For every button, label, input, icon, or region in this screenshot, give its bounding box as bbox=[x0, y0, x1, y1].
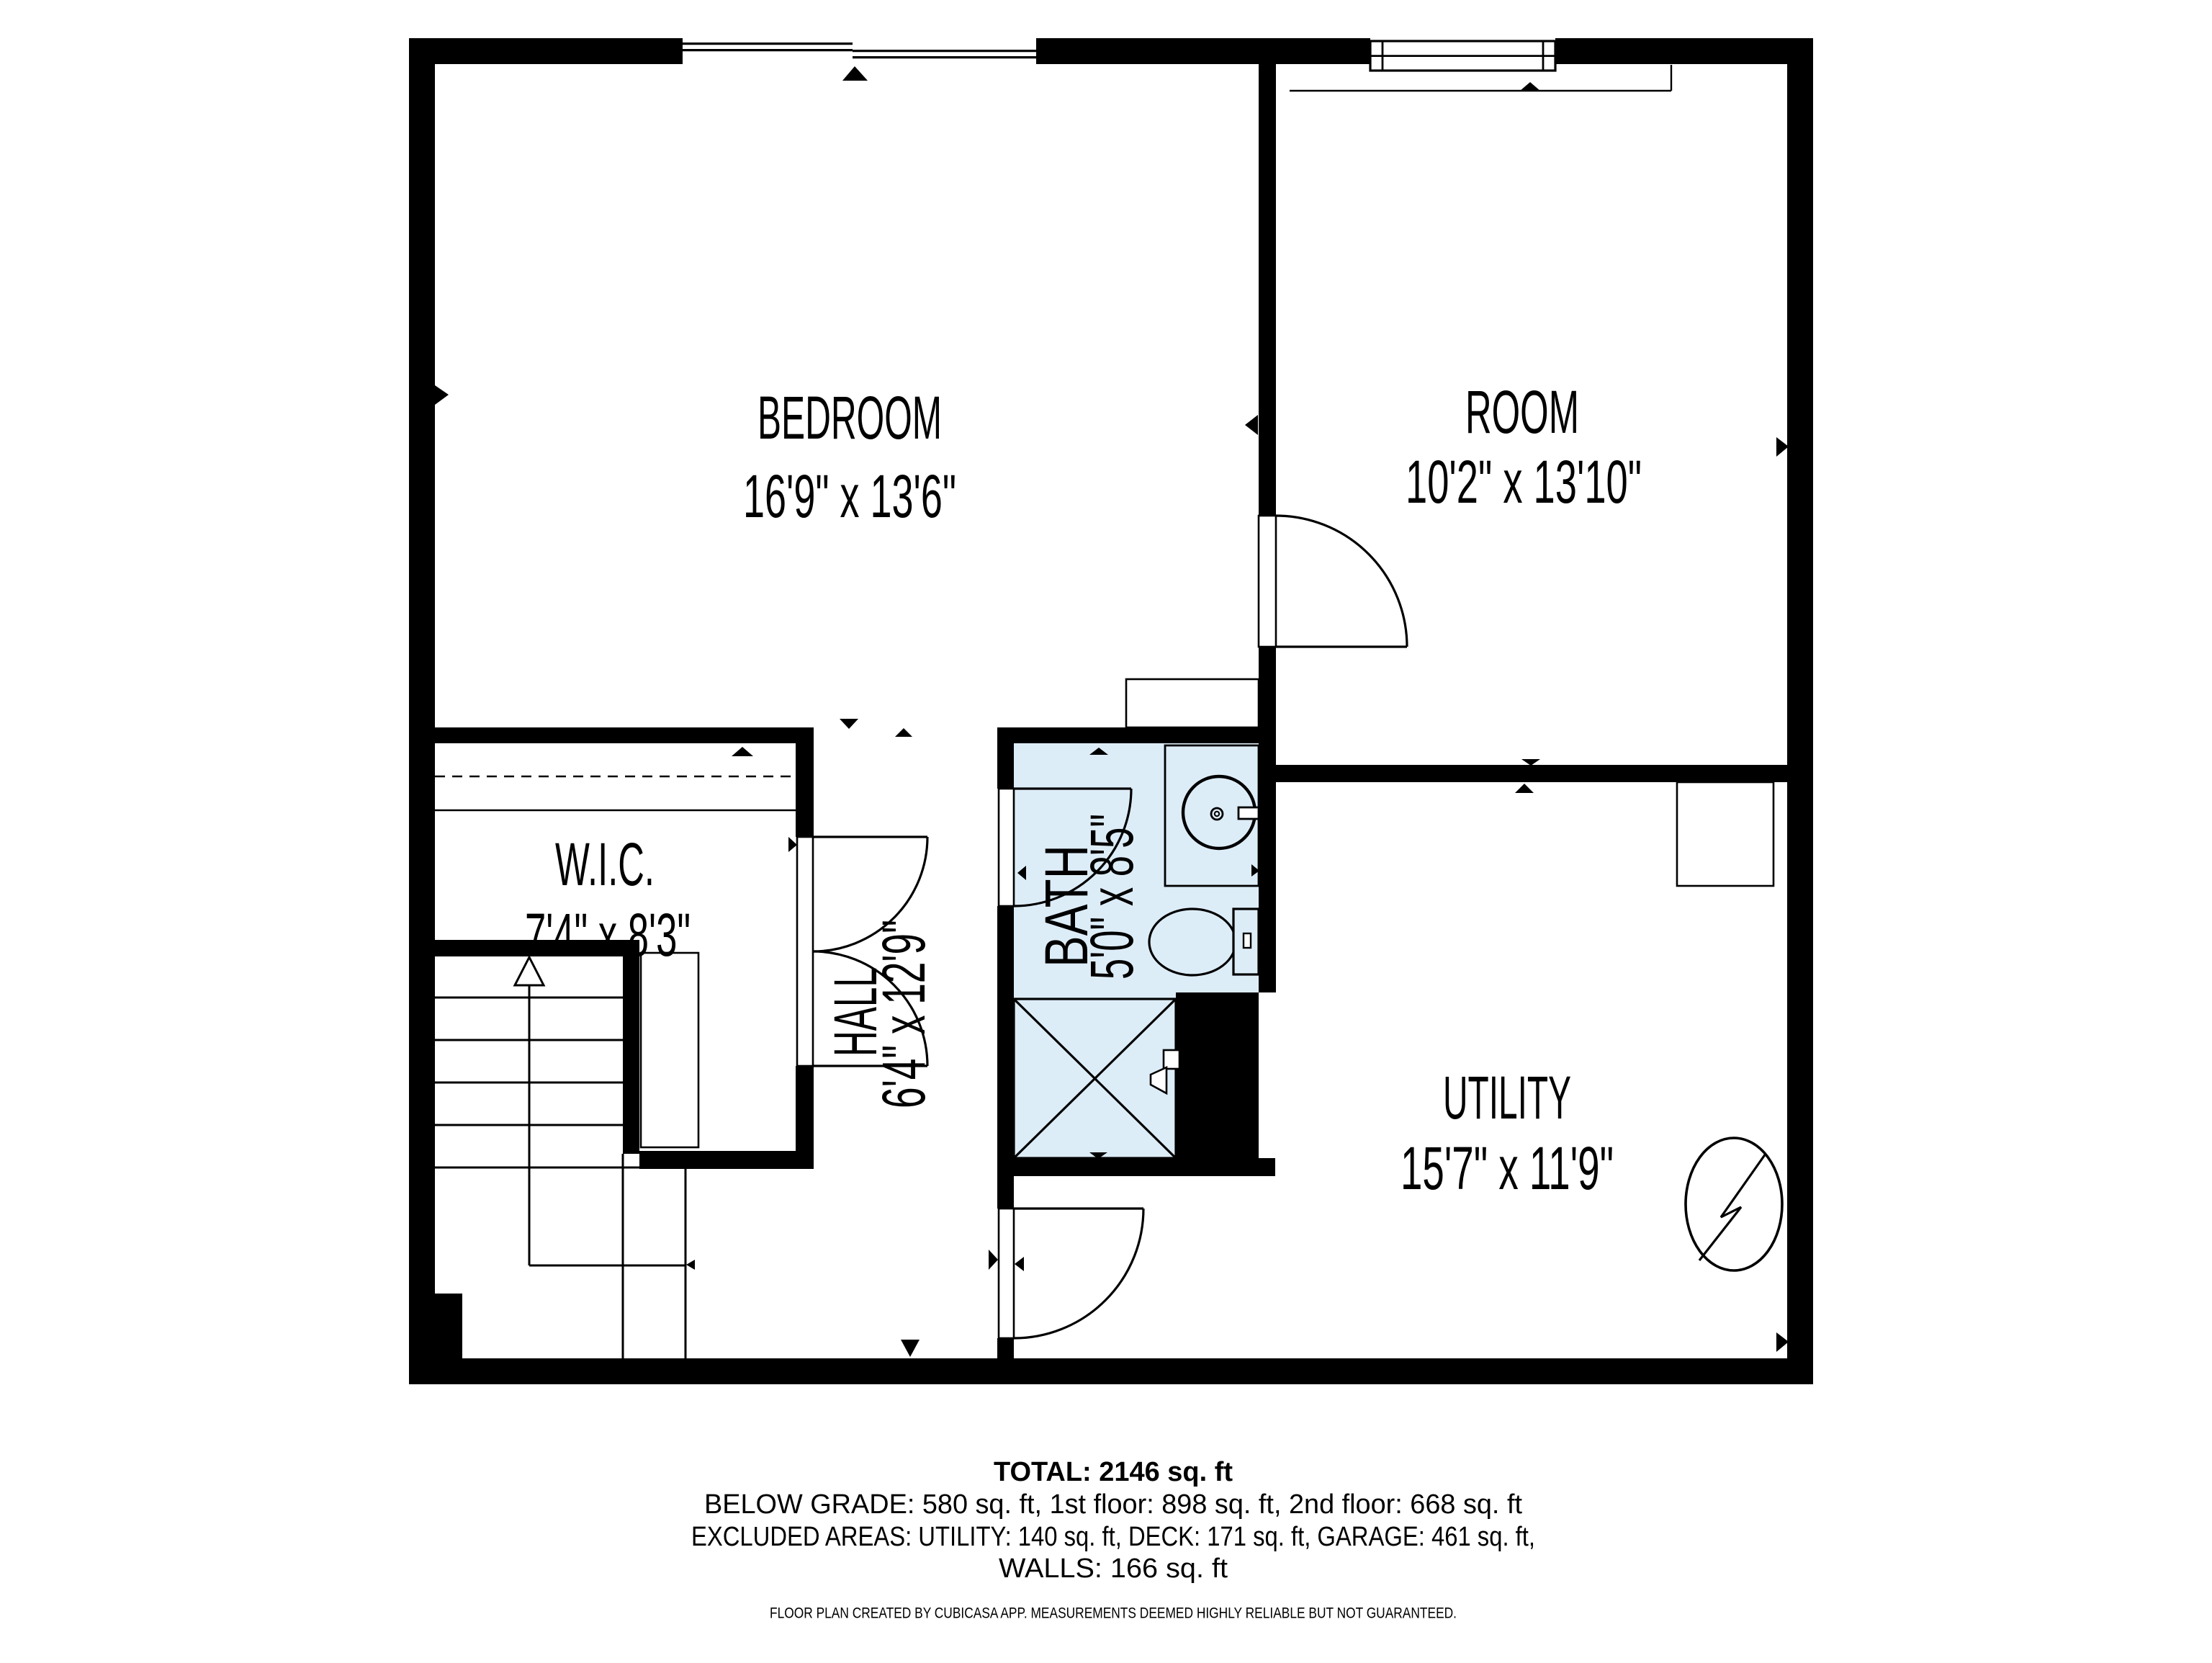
utility-label: UTILITY bbox=[1443, 1064, 1571, 1131]
room-dims: 10'2" x 13'10" bbox=[1406, 448, 1642, 516]
electrical-panel-icon bbox=[1686, 1138, 1782, 1270]
bedroom-recess-box bbox=[1126, 679, 1259, 727]
disclaimer-text: FLOOR PLAN CREATED BY CUBICASA APP. MEAS… bbox=[770, 1605, 1457, 1622]
wic-door-jamb bbox=[797, 837, 813, 1066]
bath-door-jamb bbox=[999, 789, 1014, 906]
bedroom-window-icon bbox=[683, 38, 1036, 64]
utility-cabinet-box bbox=[1677, 782, 1773, 886]
floors-area-text: BELOW GRADE: 580 sq. ft, 1st floor: 898 … bbox=[704, 1489, 1522, 1520]
floor-plan: BEDROOM 16'9" x 13'6" ROOM 10'2" x 13'10… bbox=[0, 0, 2212, 1659]
walls-area-text: WALLS: 166 sq. ft bbox=[999, 1554, 1228, 1584]
shower-valve bbox=[1164, 1050, 1179, 1069]
room-label: ROOM bbox=[1465, 378, 1579, 446]
wic-label: W.I.C. bbox=[555, 830, 655, 898]
utility-door-jamb bbox=[999, 1209, 1014, 1338]
wic-dims: 7'4" x 8'3" bbox=[525, 901, 691, 969]
stair-railing bbox=[641, 953, 698, 1147]
toilet-icon bbox=[1149, 909, 1259, 975]
bedroom-label: BEDROOM bbox=[757, 384, 942, 452]
hall-dims: 6'4" x 12'9" bbox=[870, 920, 938, 1108]
bedroom-dims: 16'9" x 13'6" bbox=[743, 462, 956, 530]
bath-dims: 5'0" x 8'5" bbox=[1078, 814, 1146, 980]
room-door-jamb bbox=[1259, 516, 1276, 647]
total-area-text: TOTAL: 2146 sq. ft bbox=[994, 1457, 1233, 1487]
utility-dims: 15'7" x 11'9" bbox=[1401, 1134, 1614, 1202]
shower-icon bbox=[1014, 999, 1179, 1158]
excluded-areas-text: EXCLUDED AREAS: UTILITY: 140 sq. ft, DEC… bbox=[691, 1522, 1535, 1552]
